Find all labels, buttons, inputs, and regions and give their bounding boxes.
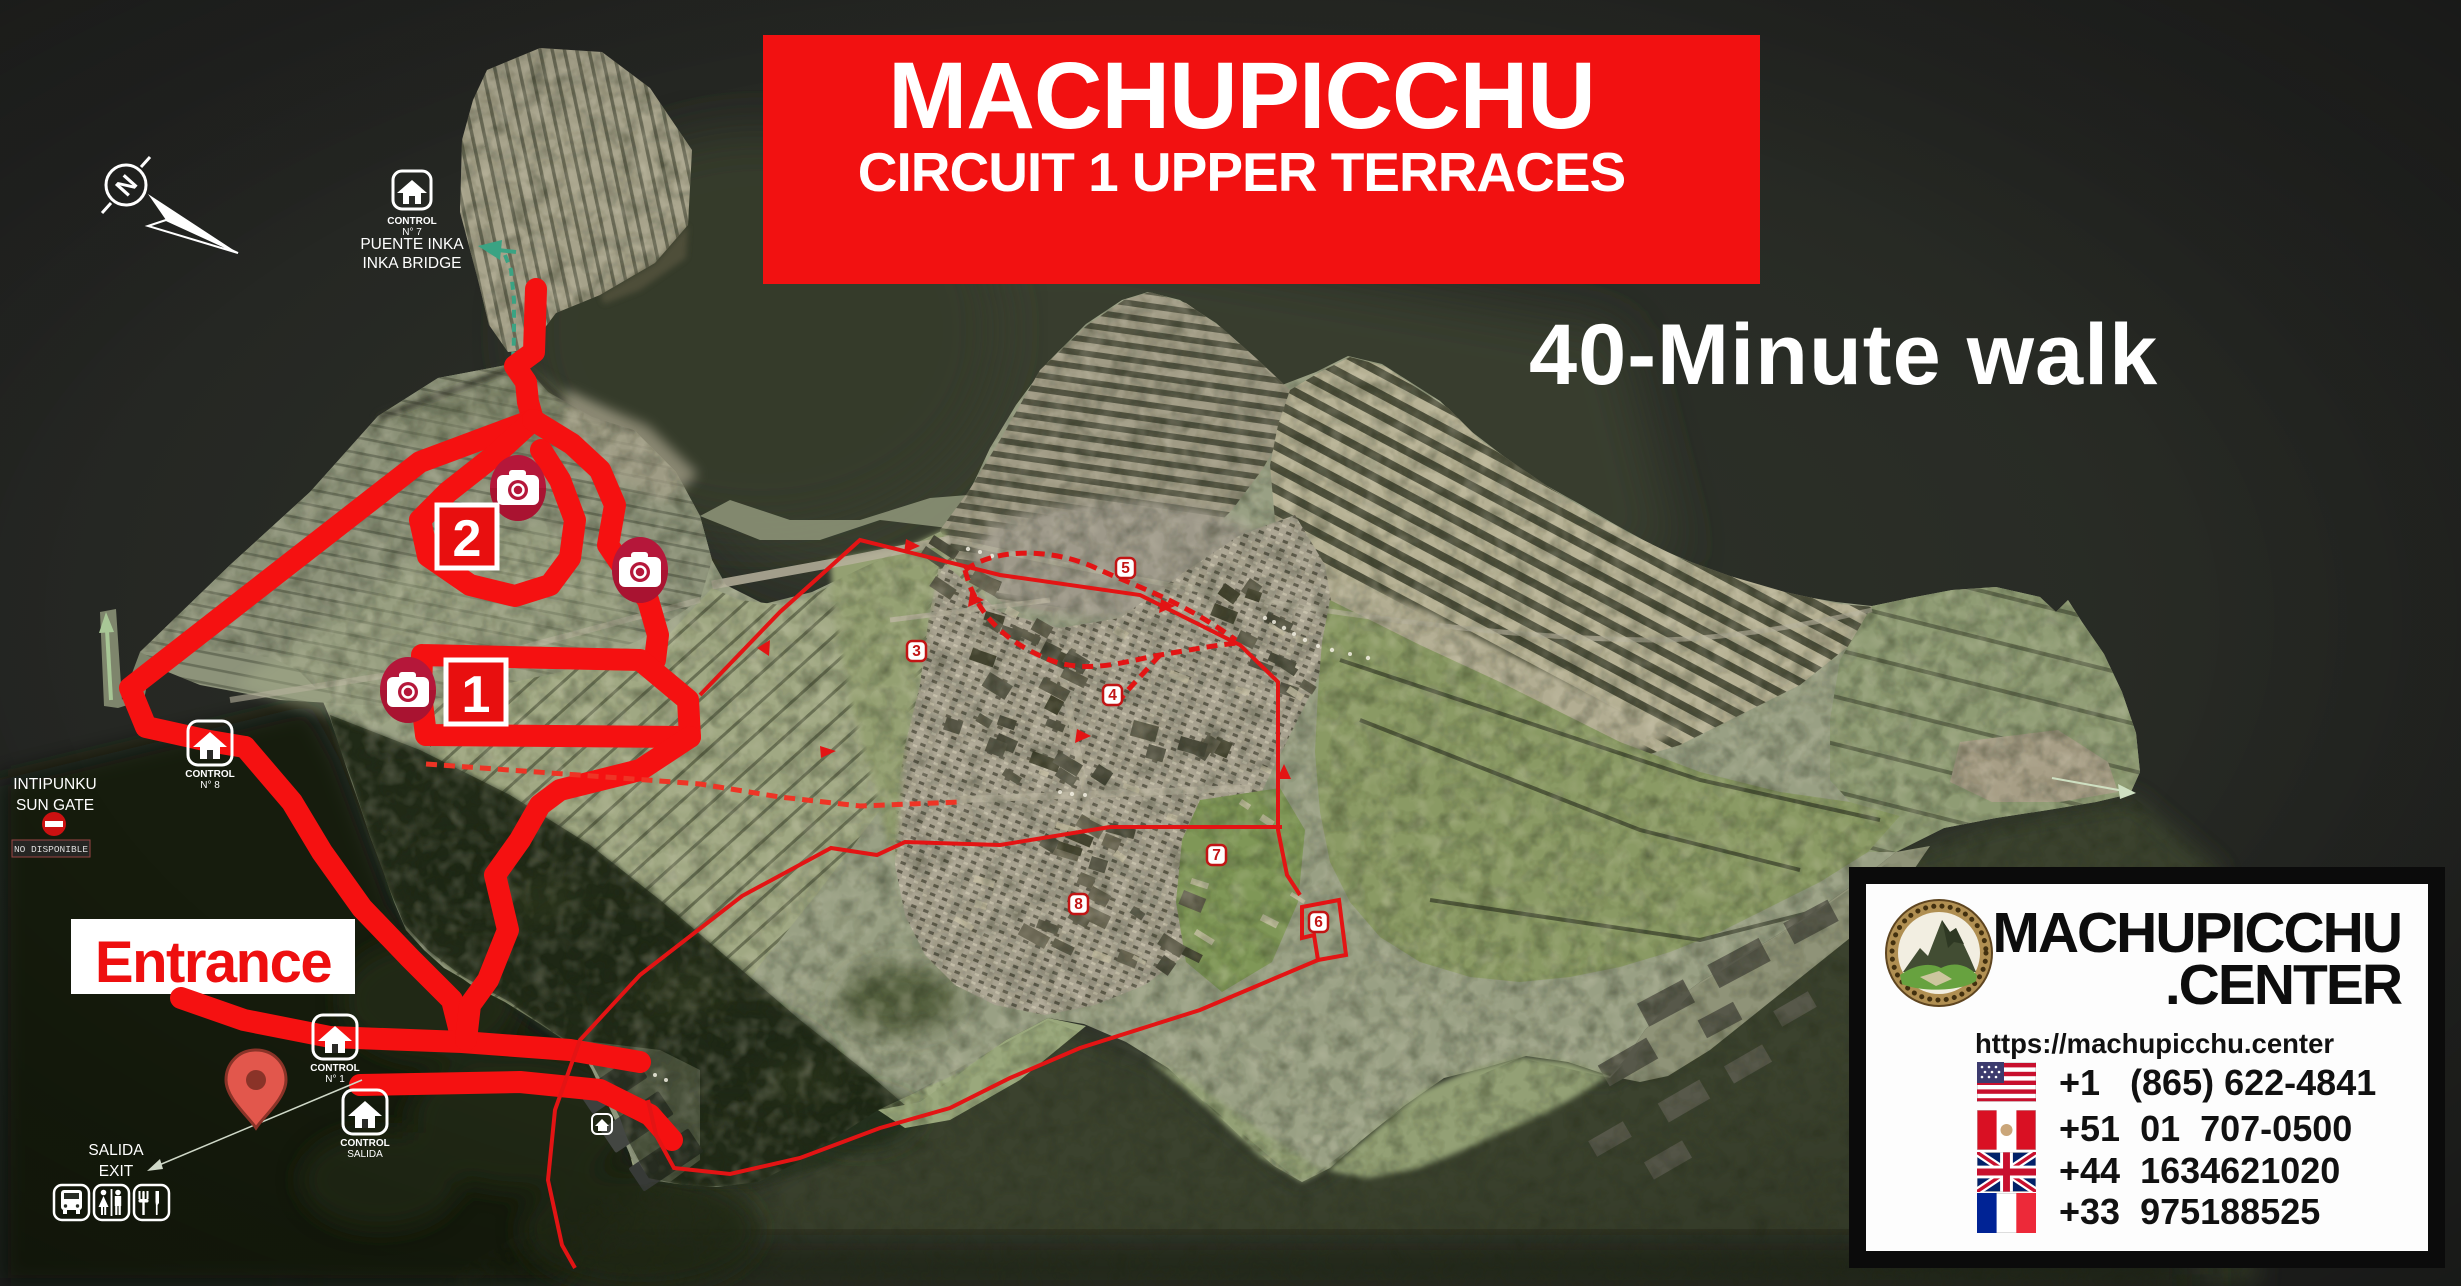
svg-text:CONTROL: CONTROL (310, 1063, 359, 1074)
svg-text:SALIDA: SALIDA (347, 1149, 383, 1160)
svg-text:N° 1: N° 1 (325, 1074, 345, 1085)
svg-text:SUN GATE: SUN GATE (16, 797, 94, 814)
svg-text:INTIPUNKU: INTIPUNKU (13, 776, 97, 793)
svg-text:2: 2 (453, 510, 482, 568)
svg-text:CONTROL: CONTROL (387, 216, 436, 227)
svg-text:SALIDA: SALIDA (88, 1142, 144, 1159)
svg-text:NO DISPONIBLE: NO DISPONIBLE (14, 844, 88, 855)
svg-text:CONTROL: CONTROL (340, 1138, 389, 1149)
svg-text:N: N (110, 170, 143, 202)
svg-text:3: 3 (912, 643, 921, 660)
svg-text:CONTROL: CONTROL (185, 769, 234, 780)
svg-text:INKA BRIDGE: INKA BRIDGE (362, 255, 461, 272)
svg-text:7: 7 (1212, 847, 1221, 864)
svg-text:N° 8: N° 8 (200, 780, 220, 791)
svg-text:1: 1 (462, 666, 491, 724)
svg-text:6: 6 (1314, 914, 1323, 931)
svg-text:4: 4 (1108, 687, 1117, 704)
svg-text:5: 5 (1121, 560, 1130, 577)
svg-text:EXIT: EXIT (99, 1163, 134, 1180)
svg-text:8: 8 (1074, 896, 1083, 913)
svg-text:PUENTE INKA: PUENTE INKA (360, 236, 464, 253)
